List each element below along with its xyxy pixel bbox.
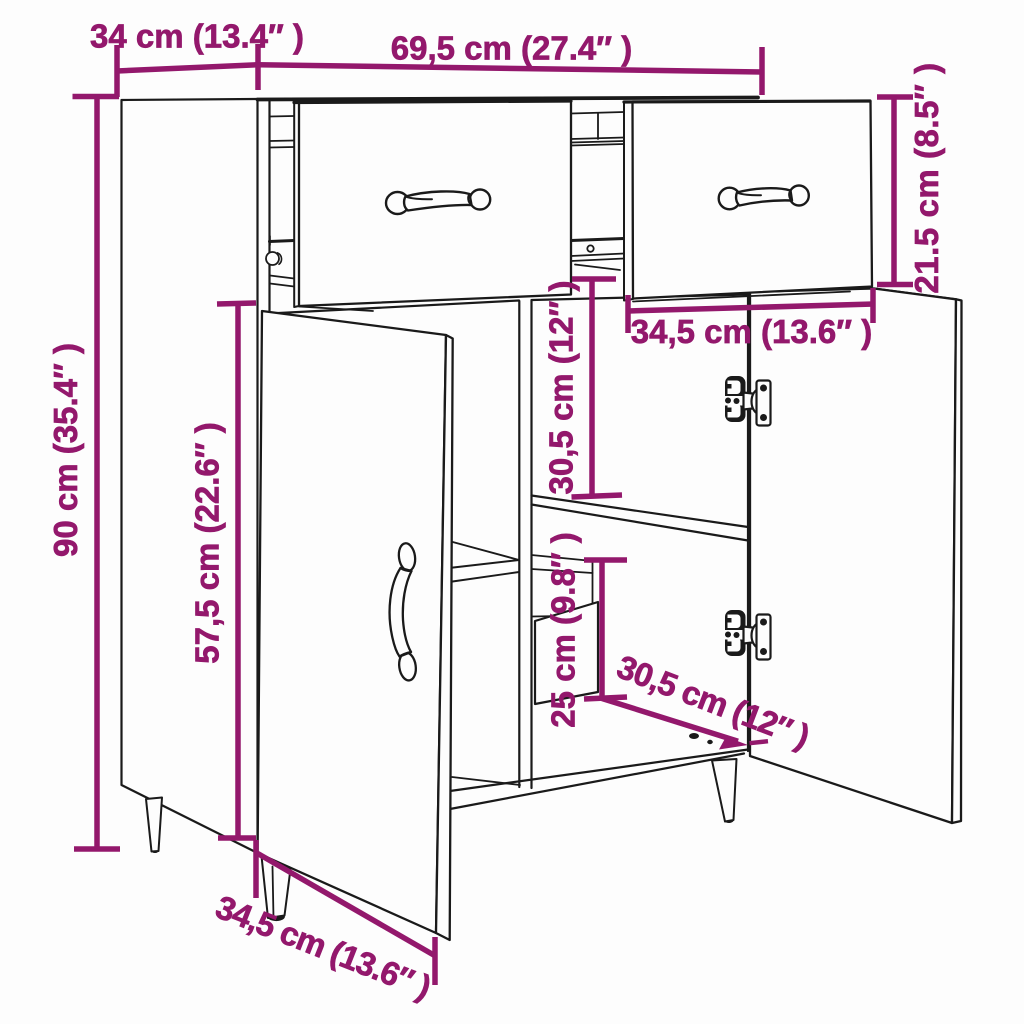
svg-text:21.5 cm (8.5″ ): 21.5 cm (8.5″ ) bbox=[908, 62, 945, 293]
svg-text:34,5 cm (13.6″ ): 34,5 cm (13.6″ ) bbox=[631, 313, 872, 350]
svg-text:57,5 cm (22.6″ ): 57,5 cm (22.6″ ) bbox=[189, 422, 226, 663]
svg-text:34 cm (13.4″ ): 34 cm (13.4″ ) bbox=[90, 18, 304, 55]
svg-text:25 cm (9.8″ ): 25 cm (9.8″ ) bbox=[545, 532, 582, 728]
svg-text:30,5 cm (12″ ): 30,5 cm (12″ ) bbox=[543, 281, 580, 495]
svg-text:69,5 cm (27.4″ ): 69,5 cm (27.4″ ) bbox=[391, 29, 632, 66]
svg-text:90 cm (35.4″ ): 90 cm (35.4″ ) bbox=[47, 343, 84, 557]
